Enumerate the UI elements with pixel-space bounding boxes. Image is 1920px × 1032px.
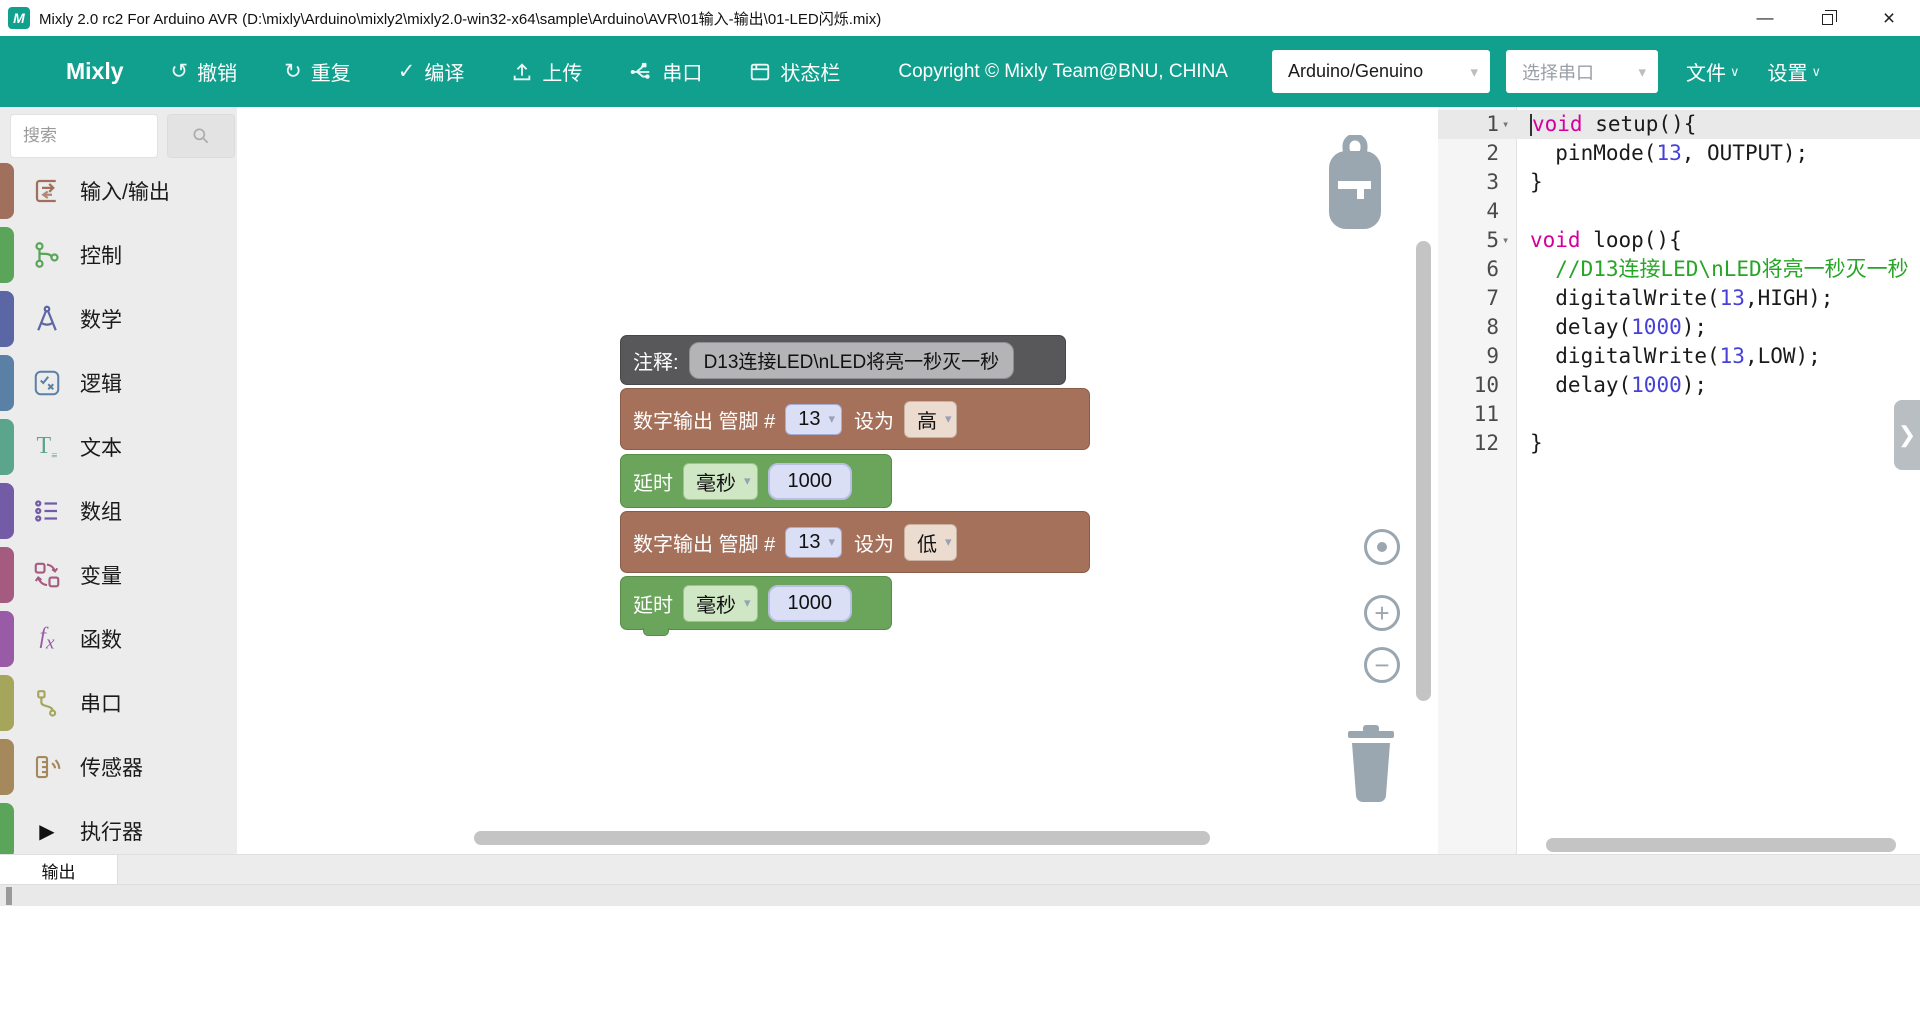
code-line-12: 12}	[1438, 429, 1920, 458]
port-select-dropdown[interactable]: 选择串口 ▾	[1506, 50, 1658, 93]
code-line-10: 10 delay(1000);	[1438, 371, 1920, 400]
level-value: 高	[917, 405, 937, 434]
line-number: 3	[1438, 168, 1499, 197]
category-color-pill	[0, 803, 14, 859]
category-color-pill	[0, 419, 14, 475]
chevron-down-icon: ∨	[1730, 64, 1740, 80]
line-number: 4	[1438, 197, 1499, 226]
level-dropdown[interactable]: 高 ▾	[904, 401, 957, 438]
chevron-down-icon: ▾	[945, 411, 952, 427]
category-label: 逻辑	[80, 368, 122, 398]
code-line-1: 1▾void setup(){	[1438, 110, 1920, 139]
sidebar-category-4[interactable]: 逻辑	[0, 351, 237, 415]
code-line-7: 7 digitalWrite(13,HIGH);	[1438, 284, 1920, 313]
output-scrollbar-thumb[interactable]	[6, 887, 12, 905]
pin-value: 13	[798, 531, 820, 554]
sidebar-category-6[interactable]: 数组	[0, 479, 237, 543]
category-label: 传感器	[80, 752, 143, 782]
code-line-5: 5▾void loop(){	[1438, 226, 1920, 255]
window-title: Mixly 2.0 rc2 For Arduino AVR (D:\mixly\…	[39, 8, 881, 29]
serial-cable-icon	[30, 686, 64, 720]
text-icon: T≡	[30, 430, 64, 464]
code-line-6: 6 //D13连接LED\nLED将亮一秒灭一秒	[1438, 255, 1920, 284]
main-toolbar: Mixly ↺ 撤销 ↻ 重复 ✓ 编译 上传 串口 状态栏 Copyright…	[0, 36, 1920, 107]
compile-check-icon: ✓	[398, 61, 416, 82]
search-button[interactable]	[167, 114, 235, 158]
canvas-horizontal-scrollbar[interactable]	[474, 831, 1210, 845]
line-number: 9	[1438, 342, 1499, 371]
code-lines: 1▾void setup(){2 pinMode(13, OUTPUT);3}4…	[1438, 110, 1920, 458]
statusbar-label: 状态栏	[780, 57, 840, 86]
category-color-pill	[0, 163, 14, 219]
control-branch-icon	[30, 238, 64, 272]
compile-label: 编译	[424, 57, 464, 86]
delay-unit-dropdown[interactable]: 毫秒 ▾	[683, 463, 758, 500]
category-color-pill	[0, 547, 14, 603]
copyright-text: Copyright © Mixly Team@BNU, CHINA	[898, 61, 1228, 83]
settings-menu[interactable]: 设置 ∨	[1768, 57, 1822, 86]
line-number: 5	[1438, 226, 1499, 255]
zoom-out-button[interactable]: −	[1364, 647, 1400, 683]
logic-check-icon	[30, 366, 64, 400]
digital-write-label: 数字输出 管脚 #	[633, 528, 775, 557]
sensor-icon	[30, 750, 64, 784]
upload-icon	[511, 61, 533, 83]
category-label: 变量	[80, 560, 122, 590]
line-number: 12	[1438, 429, 1499, 458]
chevron-down-icon: ▾	[1456, 63, 1478, 81]
block-delay-2[interactable]: 延时 毫秒 ▾ 1000	[620, 576, 892, 630]
chevron-down-icon: ∨	[1812, 64, 1822, 80]
output-tab-bar: 输出	[0, 854, 1920, 884]
board-select-value: Arduino/Genuino	[1288, 61, 1423, 82]
line-number: 7	[1438, 284, 1499, 313]
close-icon: ×	[1883, 8, 1895, 29]
code-text: delay(1000);	[1530, 371, 1707, 400]
chevron-down-icon: ▾	[1624, 63, 1646, 81]
level-value: 低	[917, 528, 937, 557]
code-text: void setup(){	[1530, 110, 1696, 139]
code-line-8: 8 delay(1000);	[1438, 313, 1920, 342]
delay-label: 延时	[633, 467, 673, 496]
category-label: 执行器	[80, 816, 143, 846]
chevron-down-icon: ▾	[744, 595, 751, 611]
category-color-pill	[0, 227, 14, 283]
code-text: digitalWrite(13,LOW);	[1530, 342, 1821, 371]
sidebar-category-list: 输入/输出控制数学逻辑T≡文本数组变量fx函数串口传感器▶执行器	[0, 159, 237, 863]
array-list-icon	[30, 494, 64, 528]
chevron-down-icon: ▾	[829, 534, 836, 550]
sidebar-category-5[interactable]: T≡文本	[0, 415, 237, 479]
chevron-right-icon: ❯	[1898, 422, 1916, 448]
digital-write-label: 数字输出 管脚 #	[633, 405, 775, 434]
category-color-pill	[0, 355, 14, 411]
statusbar-icon	[749, 61, 771, 83]
code-text: pinMode(13, OUTPUT);	[1530, 139, 1808, 168]
variable-swap-icon	[30, 558, 64, 592]
window-controls: — ×	[1734, 0, 1920, 36]
line-number: 10	[1438, 371, 1499, 400]
category-label: 函数	[80, 624, 122, 654]
line-number: 6	[1438, 255, 1499, 284]
code-line-11: 11	[1438, 400, 1920, 429]
minimize-button[interactable]: —	[1734, 0, 1796, 36]
pin-dropdown[interactable]: 13 ▾	[785, 404, 842, 435]
category-label: 串口	[80, 688, 122, 718]
code-line-2: 2 pinMode(13, OUTPUT);	[1438, 139, 1920, 168]
compile-button[interactable]: ✓ 编译	[398, 57, 465, 86]
delay-label: 延时	[633, 589, 673, 618]
upload-label: 上传	[542, 57, 582, 86]
category-label: 文本	[80, 432, 122, 462]
pin-dropdown[interactable]: 13 ▾	[785, 527, 842, 558]
board-select-dropdown[interactable]: Arduino/Genuino ▾	[1272, 50, 1490, 93]
trash-can-icon[interactable]	[1340, 723, 1402, 810]
delay-value-block[interactable]: 1000	[768, 585, 853, 622]
code-line-4: 4	[1438, 197, 1920, 226]
line-number: 8	[1438, 313, 1499, 342]
comment-block-label: 注释:	[633, 346, 679, 375]
block-delay-1[interactable]: 延时 毫秒 ▾ 1000	[620, 454, 892, 508]
category-label: 数组	[80, 496, 122, 526]
redo-icon: ↻	[284, 61, 302, 82]
block-connector-notch	[643, 628, 669, 636]
output-console[interactable]	[0, 906, 1920, 1032]
category-color-pill	[0, 675, 14, 731]
math-compass-icon	[30, 302, 64, 336]
code-text: }	[1530, 429, 1543, 458]
category-color-pill	[0, 611, 14, 667]
category-label: 控制	[80, 240, 122, 270]
settings-menu-label: 设置	[1768, 57, 1808, 86]
code-text: }	[1530, 168, 1543, 197]
code-text: //D13连接LED\nLED将亮一秒灭一秒	[1530, 255, 1909, 284]
redo-label: 重复	[311, 57, 351, 86]
serial-monitor-button[interactable]: 串口	[629, 57, 702, 86]
chevron-down-icon: ▾	[829, 411, 836, 427]
title-bar: M Mixly 2.0 rc2 For Arduino AVR (D:\mixl…	[0, 0, 1920, 36]
code-horizontal-scrollbar[interactable]	[1546, 838, 1896, 852]
category-color-pill	[0, 291, 14, 347]
sidebar-category-10[interactable]: 传感器	[0, 735, 237, 799]
io-icon	[30, 174, 64, 208]
search-input[interactable]	[10, 114, 158, 158]
delay-unit-dropdown[interactable]: 毫秒 ▾	[683, 585, 758, 622]
function-fx-icon: fx	[30, 622, 64, 656]
output-scroll-strip[interactable]	[0, 884, 1920, 906]
actuator-play-icon: ▶	[30, 814, 64, 848]
delay-unit-value: 毫秒	[696, 467, 736, 496]
expand-panel-button[interactable]: ❯	[1894, 400, 1920, 470]
app-logo-icon: M	[8, 7, 30, 29]
category-label: 数学	[80, 304, 122, 334]
set-to-label: 设为	[854, 405, 894, 434]
search-icon	[191, 126, 211, 146]
code-text: digitalWrite(13,HIGH);	[1530, 284, 1833, 313]
file-menu-label: 文件	[1686, 57, 1726, 86]
undo-button[interactable]: ↺ 撤销	[171, 57, 238, 86]
block-comment[interactable]: 注释: D13连接LED\nLED将亮一秒灭一秒	[620, 335, 1066, 385]
brand-logo: Mixly	[66, 58, 124, 85]
tab-output[interactable]: 输出	[0, 855, 118, 885]
chevron-down-icon: ▾	[744, 473, 751, 489]
zoom-in-button[interactable]: +	[1364, 595, 1400, 631]
chevron-down-icon: ▾	[945, 534, 952, 550]
block-digital-write-high[interactable]: 数字输出 管脚 # 13 ▾ 设为 高 ▾	[620, 388, 1090, 450]
line-number: 2	[1438, 139, 1499, 168]
backpack-icon[interactable]	[1325, 135, 1385, 240]
statusbar-toggle-button[interactable]: 状态栏	[749, 57, 840, 86]
sidebar-category-3[interactable]: 数学	[0, 287, 237, 351]
close-button[interactable]: ×	[1858, 0, 1920, 36]
serial-label: 串口	[662, 57, 702, 86]
sidebar-category-2[interactable]: 控制	[0, 223, 237, 287]
code-line-3: 3}	[1438, 168, 1920, 197]
level-dropdown[interactable]: 低 ▾	[904, 524, 957, 561]
sidebar-category-1[interactable]: 输入/输出	[0, 159, 237, 223]
comment-text-field[interactable]: D13连接LED\nLED将亮一秒灭一秒	[689, 342, 1015, 379]
zoom-reset-target-button[interactable]	[1364, 529, 1400, 565]
line-number: 1	[1438, 110, 1499, 139]
port-select-value: 选择串口	[1522, 59, 1594, 85]
sidebar-category-7[interactable]: 变量	[0, 543, 237, 607]
delay-value-block[interactable]: 1000	[768, 463, 853, 500]
redo-button[interactable]: ↻ 重复	[284, 57, 351, 86]
category-color-pill	[0, 483, 14, 539]
upload-button[interactable]: 上传	[511, 57, 582, 86]
block-digital-write-low[interactable]: 数字输出 管脚 # 13 ▾ 设为 低 ▾	[620, 511, 1090, 573]
file-menu[interactable]: 文件 ∨	[1686, 57, 1740, 86]
undo-label: 撤销	[197, 57, 237, 86]
category-color-pill	[0, 739, 14, 795]
blockly-workspace[interactable]: 注释: D13连接LED\nLED将亮一秒灭一秒 数字输出 管脚 # 13 ▾ …	[237, 107, 1438, 854]
restore-icon	[1822, 14, 1833, 25]
canvas-vertical-scrollbar[interactable]	[1416, 241, 1431, 701]
code-editor-panel[interactable]: 1▾void setup(){2 pinMode(13, OUTPUT);3}4…	[1438, 107, 1920, 854]
sidebar-category-8[interactable]: fx函数	[0, 607, 237, 671]
pin-value: 13	[798, 408, 820, 431]
delay-unit-value: 毫秒	[696, 589, 736, 618]
fold-arrow-icon[interactable]: ▾	[1502, 226, 1509, 255]
code-line-9: 9 digitalWrite(13,LOW);	[1438, 342, 1920, 371]
usb-icon	[629, 61, 653, 83]
set-to-label: 设为	[854, 528, 894, 557]
code-text: void loop(){	[1530, 226, 1682, 255]
restore-button[interactable]	[1796, 0, 1858, 36]
code-text: delay(1000);	[1530, 313, 1707, 342]
block-category-sidebar: 输入/输出控制数学逻辑T≡文本数组变量fx函数串口传感器▶执行器	[0, 107, 237, 854]
undo-icon: ↺	[171, 61, 189, 82]
target-dot-icon	[1377, 542, 1387, 552]
fold-arrow-icon[interactable]: ▾	[1502, 110, 1509, 139]
sidebar-category-9[interactable]: 串口	[0, 671, 237, 735]
line-number: 11	[1438, 400, 1499, 429]
minimize-icon: —	[1757, 8, 1774, 28]
category-label: 输入/输出	[80, 176, 170, 206]
